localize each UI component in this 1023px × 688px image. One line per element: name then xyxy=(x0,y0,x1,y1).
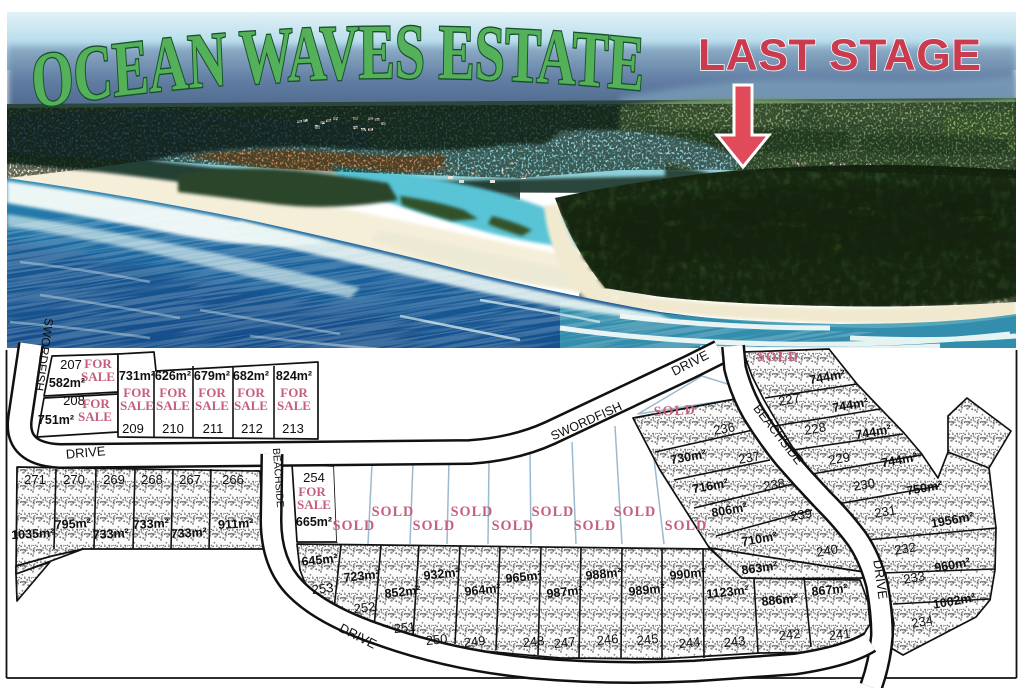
svg-text:SOLD: SOLD xyxy=(614,504,657,520)
svg-text:244: 244 xyxy=(678,634,701,651)
svg-text:795m²: 795m² xyxy=(54,516,91,532)
svg-text:211: 211 xyxy=(203,421,224,436)
svg-text:246: 246 xyxy=(596,631,619,648)
svg-text:682m²: 682m² xyxy=(233,369,269,383)
svg-text:SALE: SALE xyxy=(297,497,331,512)
svg-text:SALE: SALE xyxy=(156,398,190,413)
svg-text:SOLD: SOLD xyxy=(372,504,415,520)
svg-text:245: 245 xyxy=(636,631,659,648)
svg-text:250: 250 xyxy=(425,631,448,648)
svg-text:207: 207 xyxy=(60,357,82,372)
svg-text:252: 252 xyxy=(353,599,376,616)
svg-text:733m²: 733m² xyxy=(170,525,207,541)
svg-text:241: 241 xyxy=(828,626,851,643)
svg-text:SOLD: SOLD xyxy=(574,518,617,534)
svg-text:243: 243 xyxy=(723,633,746,650)
svg-text:SALE: SALE xyxy=(277,398,311,413)
svg-text:824m²: 824m² xyxy=(276,369,312,383)
svg-text:251: 251 xyxy=(393,619,416,636)
svg-text:SALE: SALE xyxy=(78,409,112,424)
svg-text:SALE: SALE xyxy=(234,398,268,413)
svg-text:SOLD: SOLD xyxy=(333,518,376,534)
svg-text:665m²: 665m² xyxy=(296,515,332,529)
svg-text:248: 248 xyxy=(522,633,545,650)
svg-text:269: 269 xyxy=(103,472,125,487)
svg-text:626m²: 626m² xyxy=(155,369,191,383)
svg-text:209: 209 xyxy=(122,421,144,436)
svg-text:212: 212 xyxy=(241,421,263,436)
svg-text:SOLD: SOLD xyxy=(451,504,494,520)
svg-text:731m²: 731m² xyxy=(119,369,155,383)
svg-text:213: 213 xyxy=(282,421,304,436)
svg-text:582m²: 582m² xyxy=(49,376,85,390)
svg-text:266: 266 xyxy=(222,472,244,487)
svg-text:210: 210 xyxy=(162,421,184,436)
svg-text:249: 249 xyxy=(463,633,486,650)
svg-text:SOLD: SOLD xyxy=(413,518,456,534)
svg-text:270: 270 xyxy=(63,472,85,487)
svg-text:SOLD: SOLD xyxy=(653,403,696,420)
svg-text:SOLD: SOLD xyxy=(492,518,535,534)
svg-text:SOLD: SOLD xyxy=(532,504,575,520)
svg-text:733m²: 733m² xyxy=(132,516,169,532)
svg-text:267: 267 xyxy=(179,472,201,487)
svg-text:1035m²: 1035m² xyxy=(11,526,55,542)
svg-text:271: 271 xyxy=(24,472,46,487)
svg-text:679m²: 679m² xyxy=(194,369,230,383)
svg-text:733m²: 733m² xyxy=(92,526,129,542)
svg-text:LAST STAGE: LAST STAGE xyxy=(698,31,982,80)
svg-text:911m²: 911m² xyxy=(218,516,254,532)
svg-text:268: 268 xyxy=(141,472,163,487)
svg-text:SALE: SALE xyxy=(120,398,154,413)
svg-text:SALE: SALE xyxy=(195,398,229,413)
svg-text:247: 247 xyxy=(553,634,576,651)
svg-text:SALE: SALE xyxy=(81,369,115,384)
svg-text:SOLD: SOLD xyxy=(665,518,708,534)
svg-text:254: 254 xyxy=(303,470,325,485)
svg-text:SOLD: SOLD xyxy=(757,350,799,365)
svg-text:751m²: 751m² xyxy=(38,413,74,427)
svg-text:253: 253 xyxy=(311,580,334,597)
svg-text:242: 242 xyxy=(778,626,801,643)
